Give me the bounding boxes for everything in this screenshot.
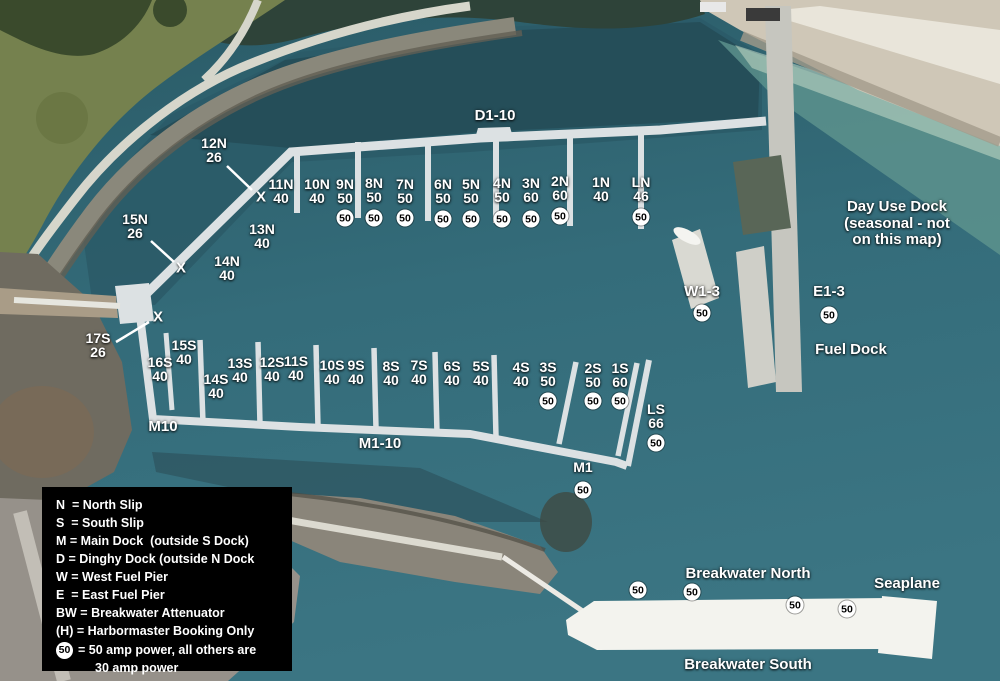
power-badge-east-fuel-pier: 50: [821, 307, 838, 324]
day-use-note: Day Use Dock(seasonal - noton this map): [844, 199, 950, 249]
legend-row-3: M = Main Dock (outside S Dock): [56, 532, 286, 550]
slip-label-12s: 12S40: [260, 355, 285, 383]
legend-row-2: S = South Slip: [56, 514, 286, 532]
power-badge-3n: 50: [523, 211, 540, 228]
slip-label-13s: 13S40: [228, 356, 253, 384]
label-breakwater-south: Breakwater South: [684, 657, 812, 672]
slip-label-m1: M1: [573, 460, 592, 474]
slip-label-3s: 3S50: [539, 360, 556, 388]
power-badge-6n: 50: [435, 211, 452, 228]
label-breakwater-north: Breakwater North: [685, 566, 810, 581]
power-badge-2n: 50: [552, 208, 569, 225]
slip-label-4n: 4N50: [493, 176, 511, 204]
slip-label-14n: 14N40: [214, 254, 240, 282]
label-main-dock-m10: M10: [148, 419, 177, 434]
slip-label-3n: 3N60: [522, 176, 540, 204]
slip-label-ls: LS66: [647, 402, 665, 430]
slip-label-2s: 2S50: [584, 361, 601, 389]
slip-label-5n: 5N50: [462, 177, 480, 205]
label-main-dock-range: M1-10: [359, 436, 402, 451]
label-dinghy-dock-range: D1-10: [475, 108, 516, 123]
x-mark-2: X: [176, 261, 186, 276]
breakwater-badge-1: 50: [630, 582, 647, 599]
slip-label-2n: 2N60: [551, 174, 569, 202]
power-badge-m1: 50: [575, 482, 592, 499]
legend-row-4: D = Dinghy Dock (outside N Dock: [56, 550, 286, 568]
power-badge-8n: 50: [366, 210, 383, 227]
slip-label-4s: 4S40: [512, 360, 529, 388]
slip-label-15n: 15N26: [122, 212, 148, 240]
slip-label-12n: 12N26: [201, 136, 227, 164]
legend-row-8: (H) = Harbormaster Booking Only: [56, 622, 286, 640]
power-badge-3s: 50: [540, 393, 557, 410]
slip-label-5s: 5S40: [472, 359, 489, 387]
power-badge-west-fuel-pier: 50: [694, 305, 711, 322]
slip-label-6n: 6N50: [434, 177, 452, 205]
slip-label-8n: 8N50: [365, 176, 383, 204]
slip-label-9s: 9S40: [347, 358, 364, 386]
power-badge-7n: 50: [397, 210, 414, 227]
x-mark-1: X: [256, 190, 266, 205]
breakwater-badge-3: 50: [787, 597, 804, 614]
slip-label-14s: 14S40: [204, 372, 229, 400]
slip-label-13n: 13N40: [249, 222, 275, 250]
slip-label-6s: 6S40: [443, 359, 460, 387]
marina-map: 12N2615N2613N4014N4011N4010N409N50508N50…: [0, 0, 1000, 681]
power-50-badge-icon: 50: [56, 642, 73, 659]
power-badge-5n: 50: [463, 211, 480, 228]
power-badge-1s: 50: [612, 393, 629, 410]
breakwater-badge-4: 50: [839, 601, 856, 618]
legend-rows: N = North SlipS = South SlipM = Main Doc…: [56, 496, 286, 640]
slip-label-7s: 7S40: [410, 358, 427, 386]
slip-label-1s: 1S60: [611, 361, 628, 389]
legend-row-7: BW = Breakwater Attenuator: [56, 604, 286, 622]
label-west-fuel-pier: W1-3: [684, 284, 720, 299]
x-mark-3: X: [153, 310, 163, 325]
legend-amp-row: 50 = 50 amp power, all others are: [56, 641, 286, 659]
power-badge-9n: 50: [337, 210, 354, 227]
legend-amp-text-2: 30 amp power: [95, 659, 286, 677]
slip-label-17s: 17S26: [86, 331, 111, 359]
label-east-fuel-pier: E1-3: [813, 284, 845, 299]
slip-label-7n: 7N50: [396, 177, 414, 205]
slip-label-15s: 15S40: [172, 338, 197, 366]
label-seaplane: Seaplane: [874, 576, 940, 591]
slip-label-11n: 11N40: [269, 177, 294, 205]
legend: N = North SlipS = South SlipM = Main Doc…: [42, 487, 292, 671]
breakwater-badge-2: 50: [684, 584, 701, 601]
power-badge-ls: 50: [648, 435, 665, 452]
power-badge-2s: 50: [585, 393, 602, 410]
slip-label-10n: 10N40: [304, 177, 330, 205]
power-badge-4n: 50: [494, 211, 511, 228]
power-badge-ln: 50: [633, 209, 650, 226]
slip-label-1n: 1N40: [592, 175, 610, 203]
label-fuel-dock: Fuel Dock: [815, 342, 887, 357]
legend-amp-text: = 50 amp power, all others are: [78, 641, 256, 659]
slip-label-10s: 10S40: [320, 358, 345, 386]
slip-label-ln: LN46: [632, 175, 651, 203]
slip-label-9n: 9N50: [336, 177, 354, 205]
legend-row-1: N = North Slip: [56, 496, 286, 514]
legend-row-5: W = West Fuel Pier: [56, 568, 286, 586]
slip-label-11s: 11S40: [284, 354, 308, 382]
slip-label-16s: 16S40: [148, 355, 173, 383]
legend-row-6: E = East Fuel Pier: [56, 586, 286, 604]
slip-label-8s: 8S40: [382, 359, 399, 387]
